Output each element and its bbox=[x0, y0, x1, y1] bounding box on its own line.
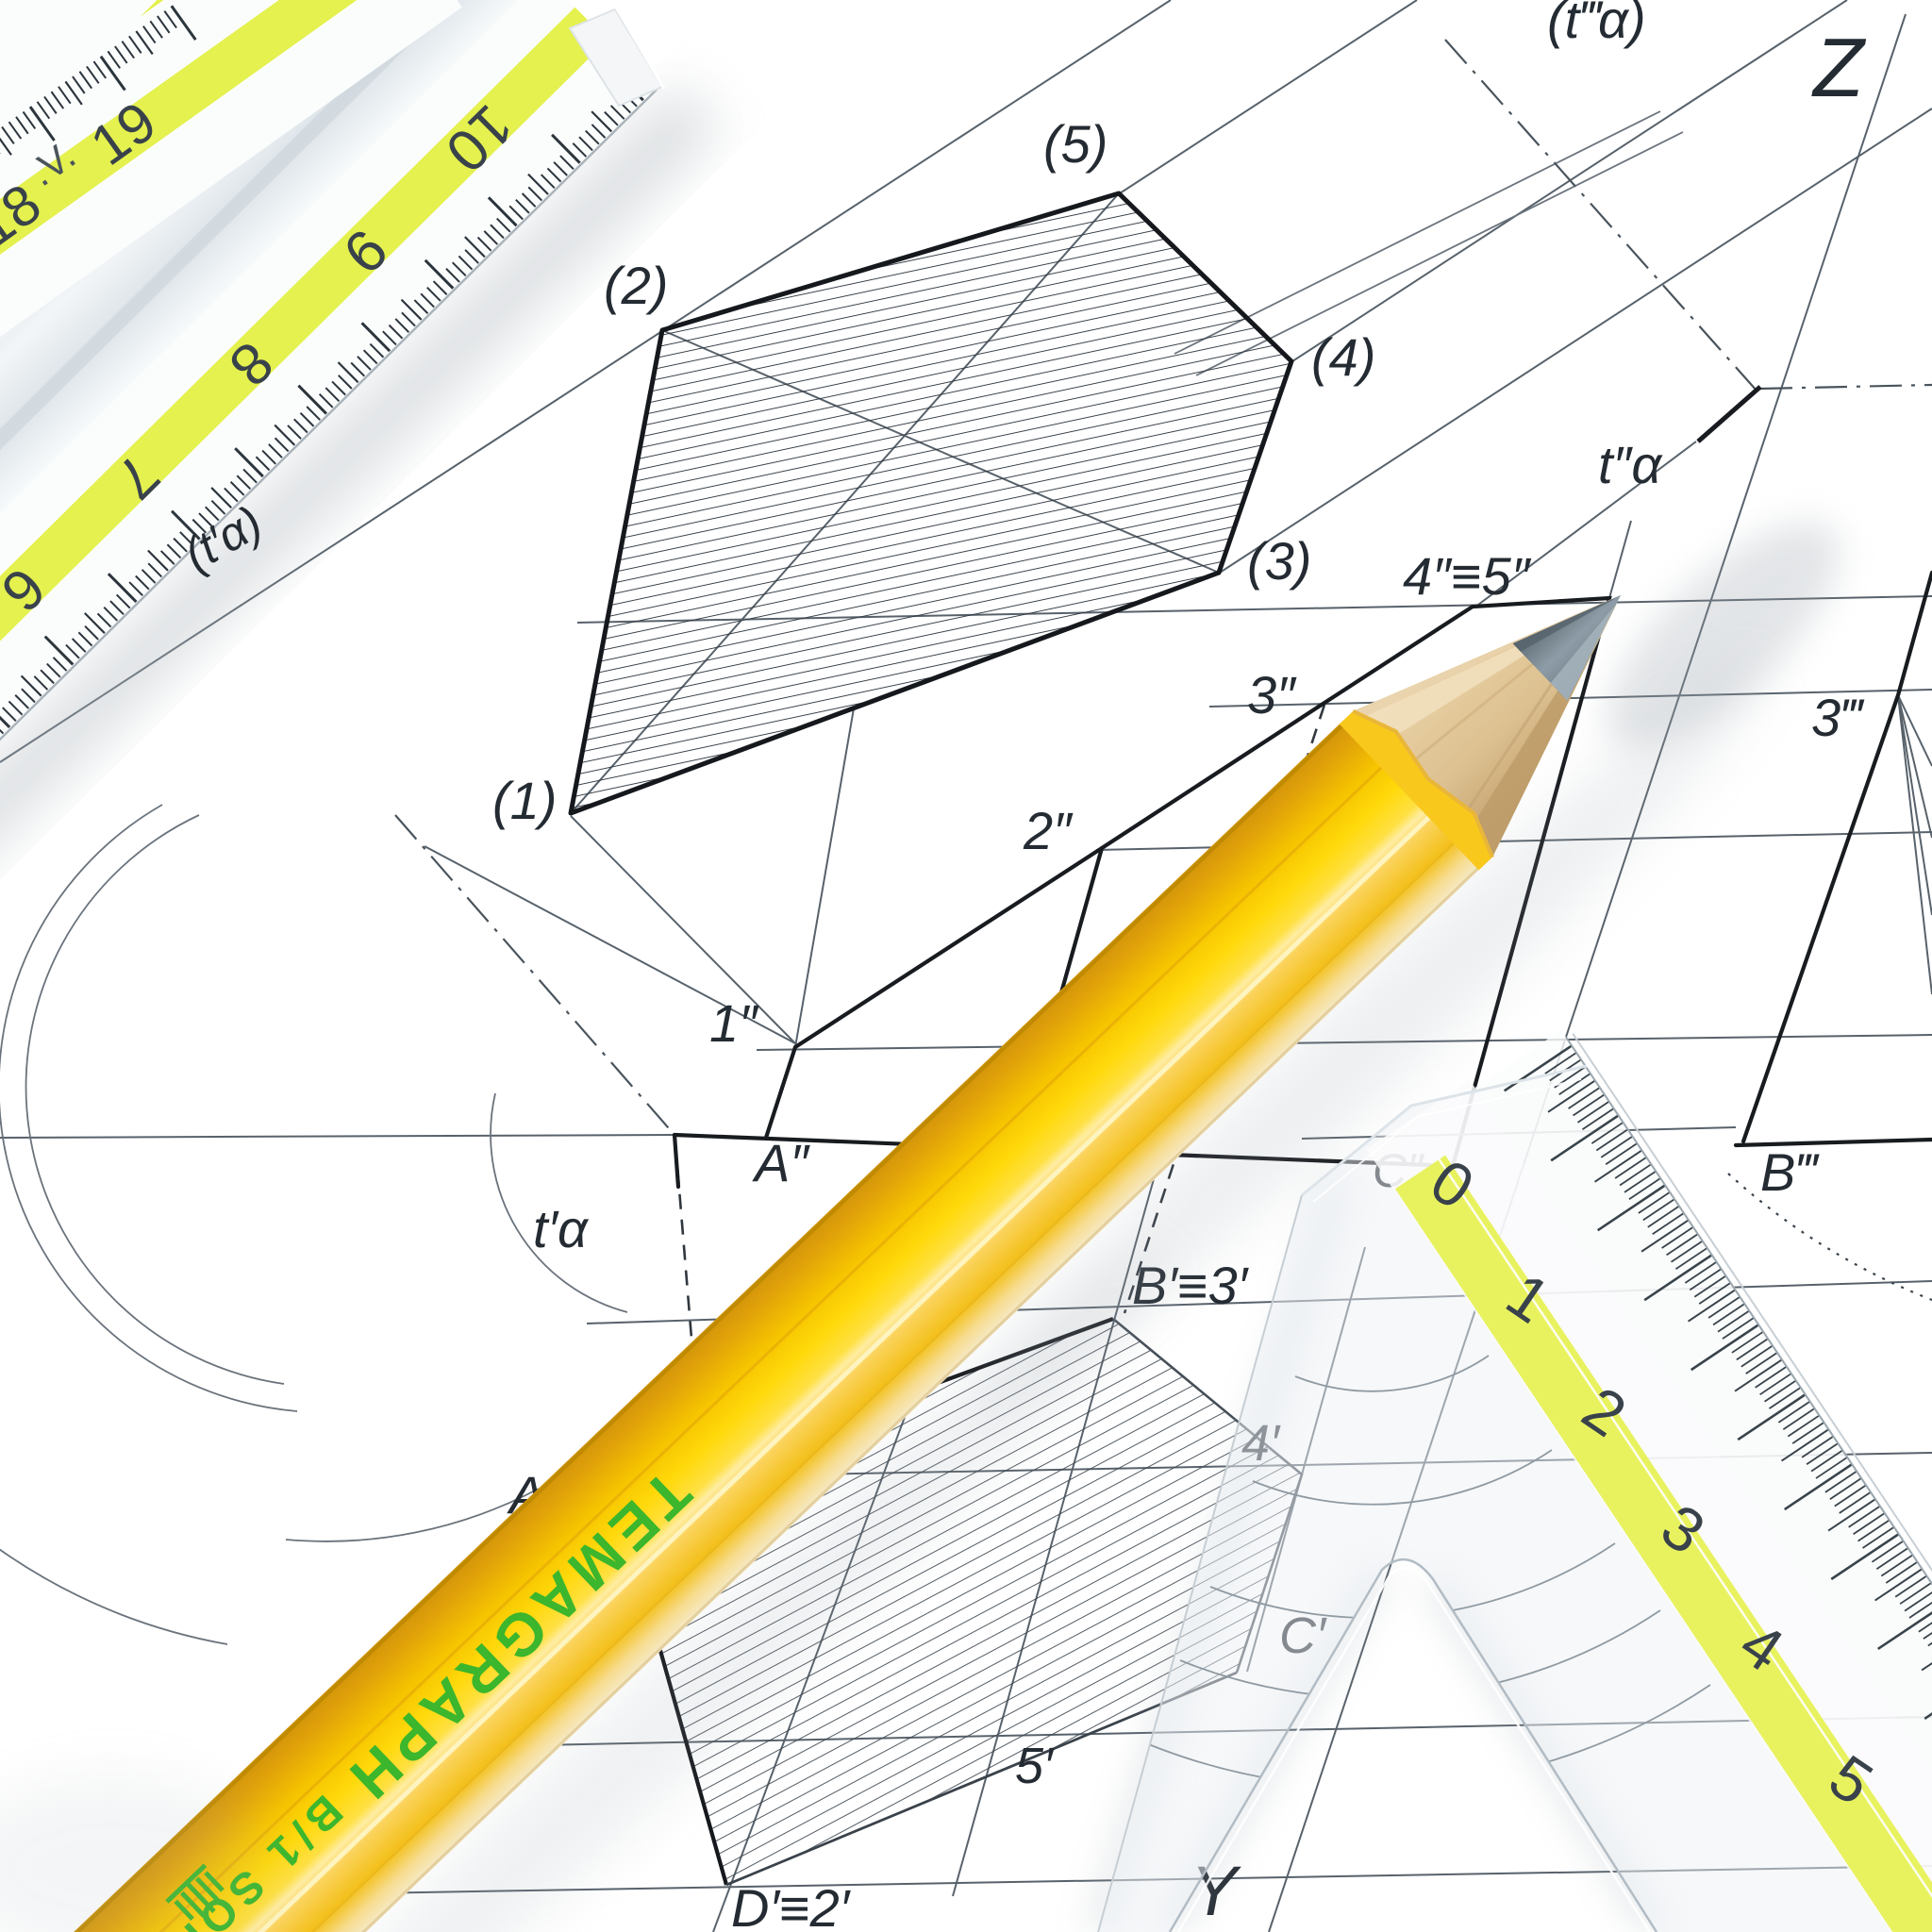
svg-text:3‴: 3‴ bbox=[1811, 688, 1865, 747]
svg-text:4″≡5″: 4″≡5″ bbox=[1403, 546, 1532, 606]
svg-text:t′α: t′α bbox=[533, 1199, 590, 1258]
svg-text:(5): (5) bbox=[1043, 114, 1108, 174]
svg-text:D′≡2′: D′≡2′ bbox=[731, 1878, 852, 1932]
svg-text:2″: 2″ bbox=[1023, 801, 1074, 860]
svg-text:Z: Z bbox=[1811, 21, 1867, 114]
svg-text:B‴: B‴ bbox=[1760, 1142, 1820, 1202]
svg-text:(2): (2) bbox=[604, 256, 668, 315]
svg-text:(3): (3) bbox=[1247, 531, 1311, 591]
svg-text:A″: A″ bbox=[752, 1133, 810, 1192]
svg-text:(t‴α): (t‴α) bbox=[1547, 0, 1646, 49]
svg-text:(1): (1) bbox=[492, 771, 557, 830]
svg-text:t″α: t″α bbox=[1598, 435, 1663, 494]
svg-text:(4): (4) bbox=[1311, 327, 1375, 387]
svg-text:1″: 1″ bbox=[709, 993, 759, 1053]
svg-text:3″: 3″ bbox=[1247, 665, 1297, 724]
svg-text:5′: 5′ bbox=[1015, 1738, 1055, 1794]
